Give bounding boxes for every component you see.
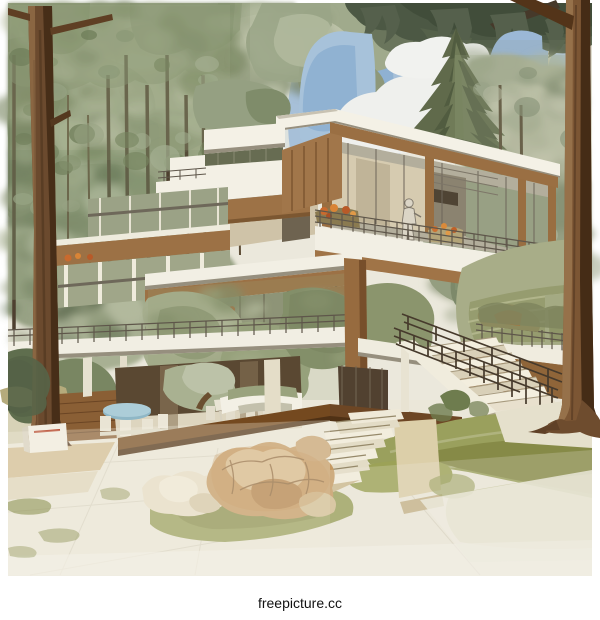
svg-text:freepicture.cc: freepicture.cc — [258, 595, 342, 611]
